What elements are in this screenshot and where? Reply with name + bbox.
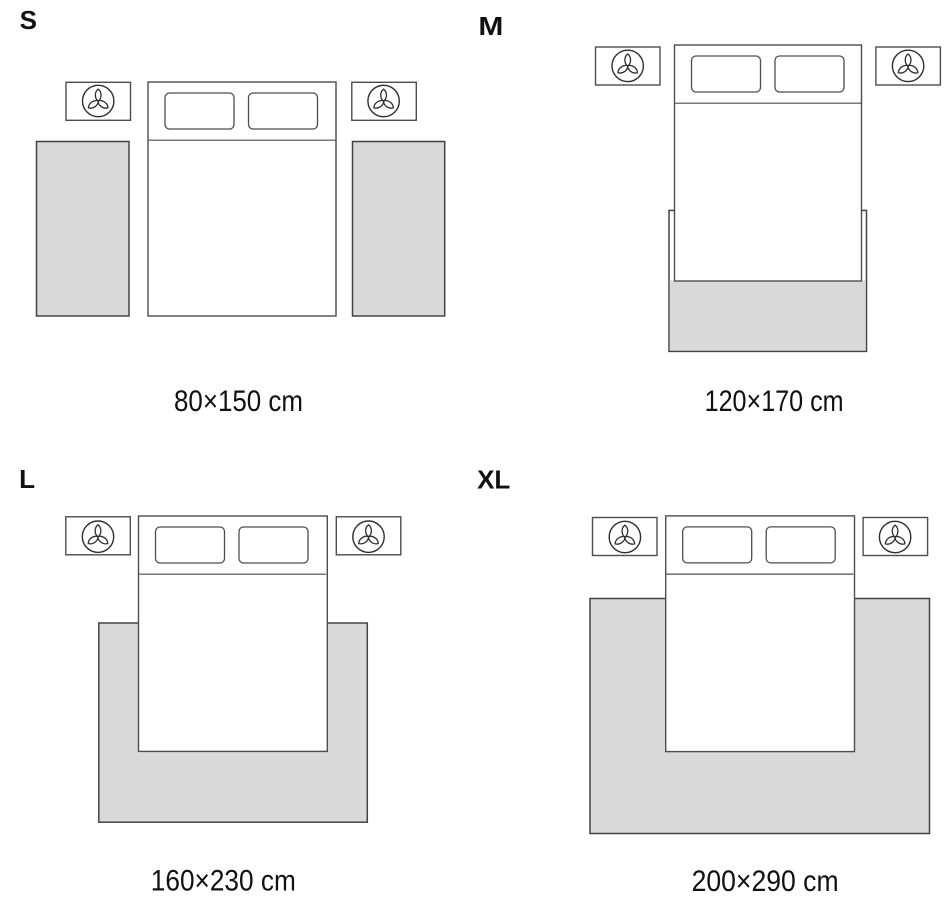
svg-text:S: S	[20, 5, 37, 35]
svg-text:L: L	[19, 464, 35, 494]
svg-text:200×290 cm: 200×290 cm	[692, 865, 839, 898]
svg-text:M: M	[478, 11, 503, 41]
svg-text:120×170 cm: 120×170 cm	[705, 385, 844, 418]
svg-text:160×230 cm: 160×230 cm	[151, 864, 296, 897]
svg-text:XL: XL	[477, 464, 510, 494]
svg-text:80×150 cm: 80×150 cm	[174, 385, 303, 418]
